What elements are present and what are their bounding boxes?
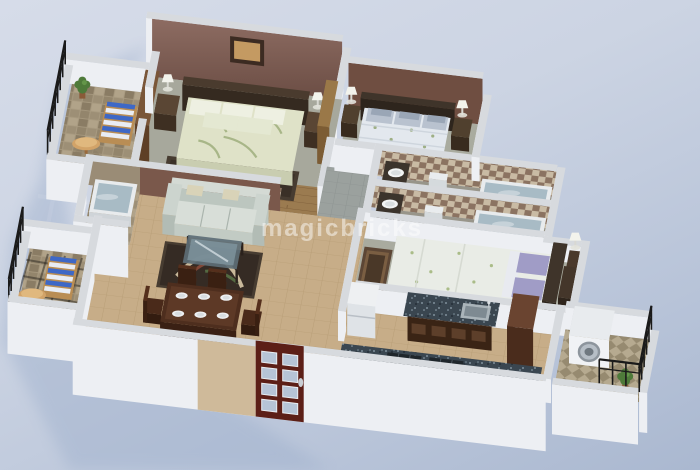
floor-plan-render: magicbricks	[0, 0, 700, 470]
sofa-arm-left-front	[162, 214, 176, 236]
door-pane	[262, 383, 277, 396]
master-west-wall-a-front	[145, 87, 153, 114]
watermark: magicbricks	[261, 215, 423, 242]
washing-machine	[569, 306, 615, 368]
picture-art	[234, 41, 260, 62]
master-nightstand-left-top	[154, 93, 180, 115]
lamp-shade	[569, 233, 581, 241]
plate-center	[175, 312, 182, 316]
entrance-door	[256, 341, 304, 423]
utility-south-parapet-front	[552, 384, 638, 444]
refrigerator-top	[347, 282, 379, 307]
lamp-base	[457, 113, 467, 118]
bedroom2-nightstand-right-top	[451, 118, 473, 138]
floral-dot	[490, 264, 493, 267]
bedroom2-nightstand-left-front	[341, 122, 357, 138]
plate-center	[219, 314, 226, 318]
island-drawer	[452, 328, 466, 340]
door-handle	[298, 378, 303, 387]
bedroom2-east-wall-front	[472, 157, 480, 182]
door-pane	[283, 386, 298, 399]
balcony2-south-wall-front	[8, 302, 78, 362]
floor-plan-canvas: magicbricks	[0, 0, 700, 470]
table-top-inner	[75, 137, 97, 147]
washbasin-bowl	[391, 170, 401, 175]
living-east-wall-front	[338, 311, 346, 342]
lamp-base	[570, 245, 580, 250]
door-pane	[262, 367, 277, 380]
lamp-base	[346, 99, 356, 104]
utility-east-parapet-front	[639, 392, 647, 433]
floral-dot	[410, 251, 413, 254]
island-drawer	[432, 326, 446, 338]
door-pane	[262, 399, 277, 412]
faucet	[487, 301, 490, 304]
plate-center	[223, 296, 230, 300]
tub-highlight	[96, 194, 118, 200]
refrigerator	[347, 282, 379, 339]
island-drawer	[412, 323, 426, 335]
plant-leaves	[82, 80, 87, 85]
floral-dot	[431, 134, 434, 137]
pillow	[516, 253, 550, 276]
washer-body-top	[569, 306, 615, 340]
plate-center	[197, 313, 204, 317]
bedroom2-nightstand-left-top	[341, 104, 361, 124]
master-nightstand-left-front	[154, 113, 176, 132]
sofa	[162, 177, 270, 246]
chair-back-front	[143, 300, 147, 323]
door-pane	[262, 351, 277, 364]
balcony2-south-wall	[8, 295, 79, 362]
plate-center	[178, 294, 185, 298]
corridor-north-wall	[334, 138, 375, 175]
master-nightstand-left	[154, 93, 180, 131]
refrigerator-front	[347, 303, 375, 338]
chair-back-front	[255, 314, 259, 337]
sofa-cushion	[222, 189, 240, 201]
kitchen-tall-cabinet-front	[507, 326, 533, 369]
utility-balcony	[552, 301, 659, 445]
utility-south-parapet	[552, 378, 639, 445]
floral-dot	[457, 252, 460, 255]
island-drawer	[472, 330, 486, 342]
sofa-cushion	[186, 185, 204, 197]
plate-center	[200, 295, 207, 299]
front-wall-tan-patch	[198, 340, 256, 417]
floral-dot	[446, 287, 449, 290]
floral-dot	[472, 280, 475, 283]
bedroom2-nightstand-right-front	[451, 136, 469, 152]
door-pane	[283, 370, 298, 383]
door-pane	[283, 402, 298, 415]
door-pane	[283, 354, 298, 367]
washer-door-glass	[585, 348, 594, 356]
lamp-base	[163, 87, 173, 92]
floral-dot	[429, 270, 432, 273]
corridor-north-wall-front	[334, 145, 374, 176]
washbasin-bowl	[385, 201, 395, 206]
